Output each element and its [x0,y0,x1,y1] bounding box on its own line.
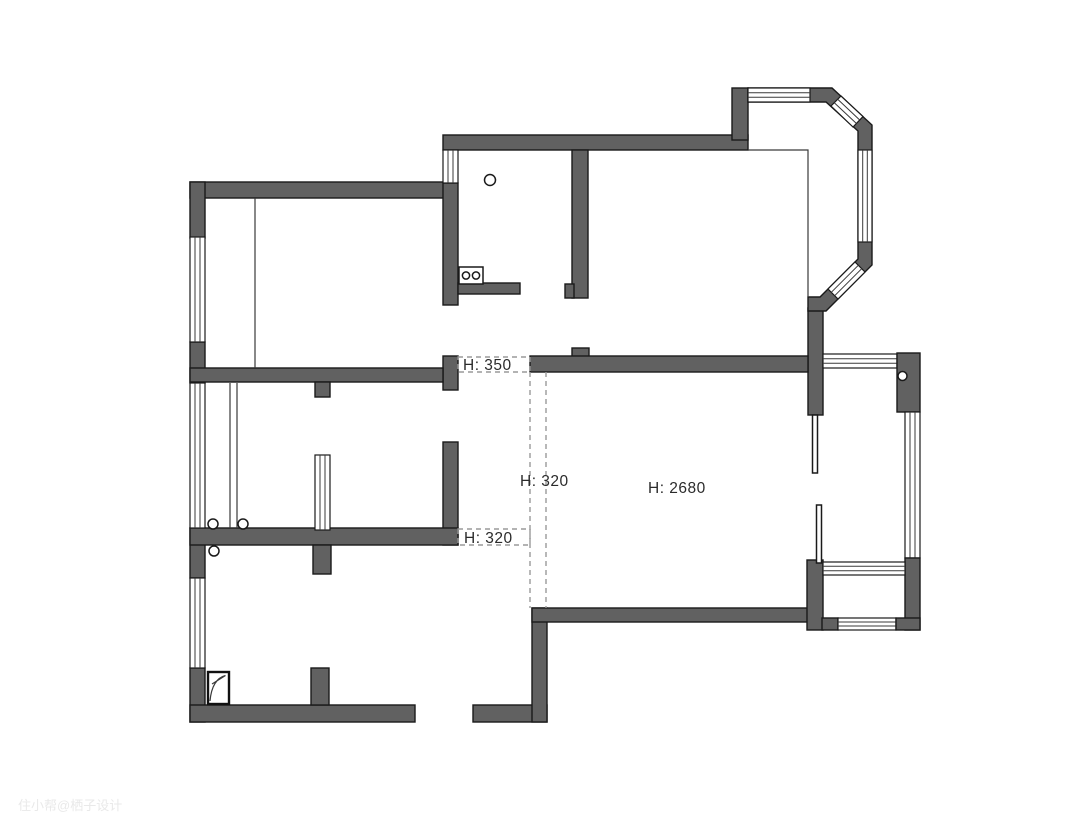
top-wall-upper [443,135,748,150]
dining-right-wall [808,308,823,415]
bedroom1-right-wall [443,183,458,305]
balcony-top-right-block [897,353,920,412]
lower-balcony-top-window [823,562,905,575]
bay-left-wall [732,88,748,140]
glass-partition-double-line [230,383,237,528]
lower-balcony-left-wall [807,560,823,630]
left-wall-a [190,182,205,238]
label-h320-opening: H: 320 [464,530,513,547]
kitchen-wall-foot [565,284,574,298]
balcony-top-window [823,354,897,368]
bay-lower-diagonal-window [828,262,865,299]
beam-annotations: H: 350 H: 320 H: 2680 H: 320 [458,357,706,608]
door-hinge-circle [209,546,219,556]
bath-left-window [190,383,205,528]
entry-side-wall [532,608,547,722]
balcony-drain-circle [898,372,907,381]
bedroom1-left-window [190,237,205,342]
balcony-right-window [905,412,920,558]
lower-balcony-bottom-window [838,618,896,630]
label-h2680: H: 2680 [648,480,706,497]
bedroom2-left-window [190,578,205,668]
shower-tray-icon [208,672,229,704]
sliding-door-leaf-2 [817,505,822,563]
bedroom1-bottom-wall [190,368,443,382]
bath-partition-stub-top [315,382,330,397]
kitchen-right-wall [572,150,588,298]
label-h350: H: 350 [463,357,512,374]
kitchen-window [443,150,458,183]
sliding-door-leaf-1 [813,415,818,473]
bay-right-window [858,150,872,242]
interior-glass-partition-window [315,455,330,530]
exterior-walls [190,88,823,722]
bay-inner-boundary-line [748,150,808,297]
stub-above-bottom-wall [311,668,329,705]
bedroom1-top-wall [190,182,457,198]
sink-drain-icon [485,175,496,186]
watermark-text: 住小帮@栖子设计 [18,798,122,813]
stove-burner-icon [472,272,479,279]
lower-balcony-bl-block [822,618,838,630]
floor-plan-page: H: 350 H: 320 H: 2680 H: 320 住小帮@栖子设计 [0,0,1080,836]
bottom-wall-left [190,705,415,722]
bay-window [748,88,872,311]
label-h320-beam: H: 320 [520,473,569,490]
bay-top-window [748,88,810,102]
thin-lines [230,198,255,528]
floor-plan-svg: H: 350 H: 320 H: 2680 H: 320 住小帮@栖子设计 [0,0,1080,836]
stub-below-mid-wall [313,545,331,574]
h350-end-block [443,356,458,390]
door-hinge-circle [208,519,218,529]
living-top-wall [530,356,808,372]
balcony [807,353,920,630]
door-hinge-circle [238,519,248,529]
stove-burner-icon [462,272,469,279]
lower-balcony-br-block [896,618,920,630]
living-bottom-wall [532,608,810,622]
